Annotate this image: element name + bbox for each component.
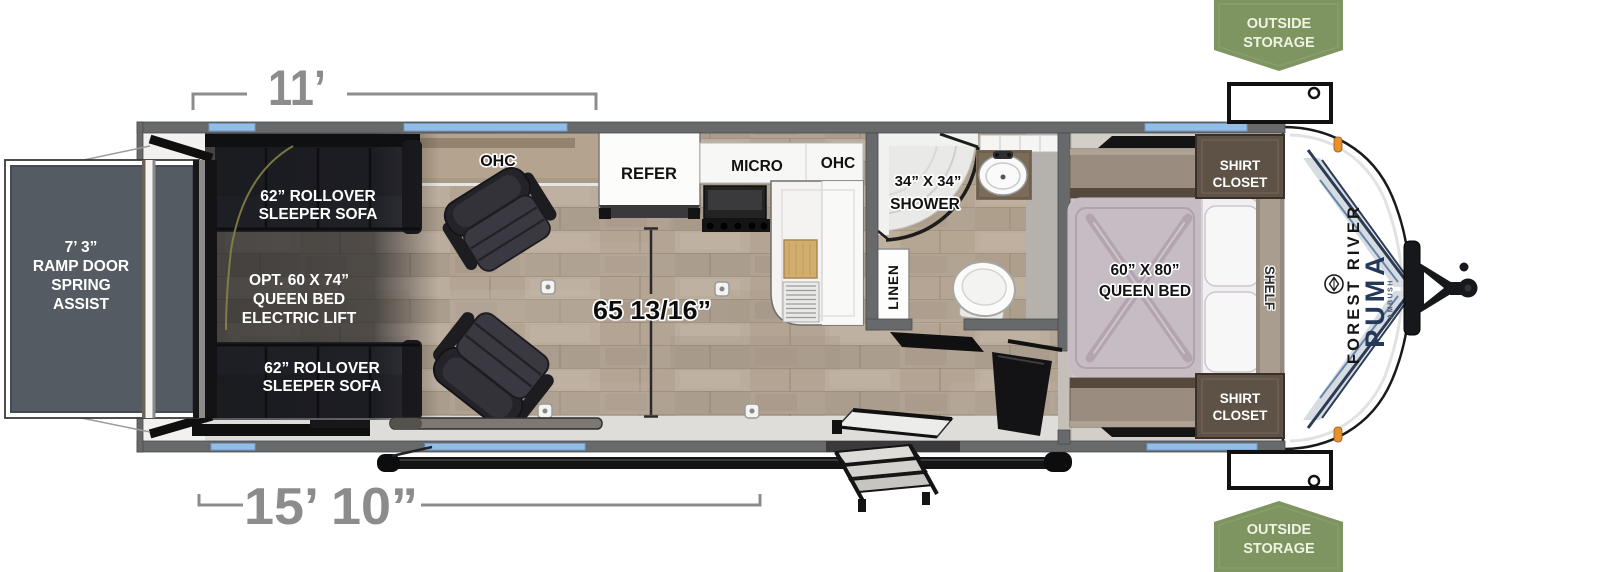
svg-text:SLEEPER SOFA: SLEEPER SOFA xyxy=(259,206,378,223)
svg-text:PUMA: PUMA xyxy=(1360,252,1390,348)
svg-text:11’: 11’ xyxy=(268,60,326,116)
svg-text:SHELF: SHELF xyxy=(1262,266,1277,310)
svg-text:CLOSET: CLOSET xyxy=(1213,408,1269,423)
svg-text:MICRO: MICRO xyxy=(731,158,783,175)
svg-text:STORAGE: STORAGE xyxy=(1243,35,1315,51)
svg-text:62” ROLLOVER: 62” ROLLOVER xyxy=(260,188,375,205)
svg-text:SHIRT: SHIRT xyxy=(1220,158,1261,173)
svg-text:62” ROLLOVER: 62” ROLLOVER xyxy=(264,360,379,377)
svg-text:LINEN: LINEN xyxy=(886,264,901,310)
svg-text:ELECTRIC LIFT: ELECTRIC LIFT xyxy=(242,310,357,327)
svg-text:7’ 3”: 7’ 3” xyxy=(65,239,98,256)
svg-text:AMBUSH: AMBUSH xyxy=(1388,279,1395,319)
svg-text:RAMP DOOR: RAMP DOOR xyxy=(33,258,129,275)
svg-text:QUEEN BED: QUEEN BED xyxy=(1099,283,1191,300)
svg-text:60” X 80”: 60” X 80” xyxy=(1111,262,1180,279)
svg-text:SPRING: SPRING xyxy=(51,277,110,294)
svg-text:STORAGE: STORAGE xyxy=(1243,541,1315,557)
svg-text:15’ 10”: 15’ 10” xyxy=(244,478,418,536)
svg-text:CLOSET: CLOSET xyxy=(1213,175,1269,190)
svg-text:OPT. 60 X 74”: OPT. 60 X 74” xyxy=(249,272,349,289)
svg-text:65 13/16”: 65 13/16” xyxy=(593,297,711,325)
svg-text:QUEEN BED: QUEEN BED xyxy=(253,291,345,308)
svg-text:ASSIST: ASSIST xyxy=(53,296,110,313)
svg-text:OUTSIDE: OUTSIDE xyxy=(1247,16,1312,32)
svg-text:REFER: REFER xyxy=(621,165,677,183)
svg-text:34” X 34”: 34” X 34” xyxy=(895,173,962,190)
svg-text:OHC: OHC xyxy=(821,155,855,172)
svg-text:OUTSIDE: OUTSIDE xyxy=(1247,522,1312,538)
svg-text:SLEEPER SOFA: SLEEPER SOFA xyxy=(263,378,382,395)
svg-text:SHOWER: SHOWER xyxy=(890,196,960,213)
svg-text:SHIRT: SHIRT xyxy=(1220,391,1261,406)
